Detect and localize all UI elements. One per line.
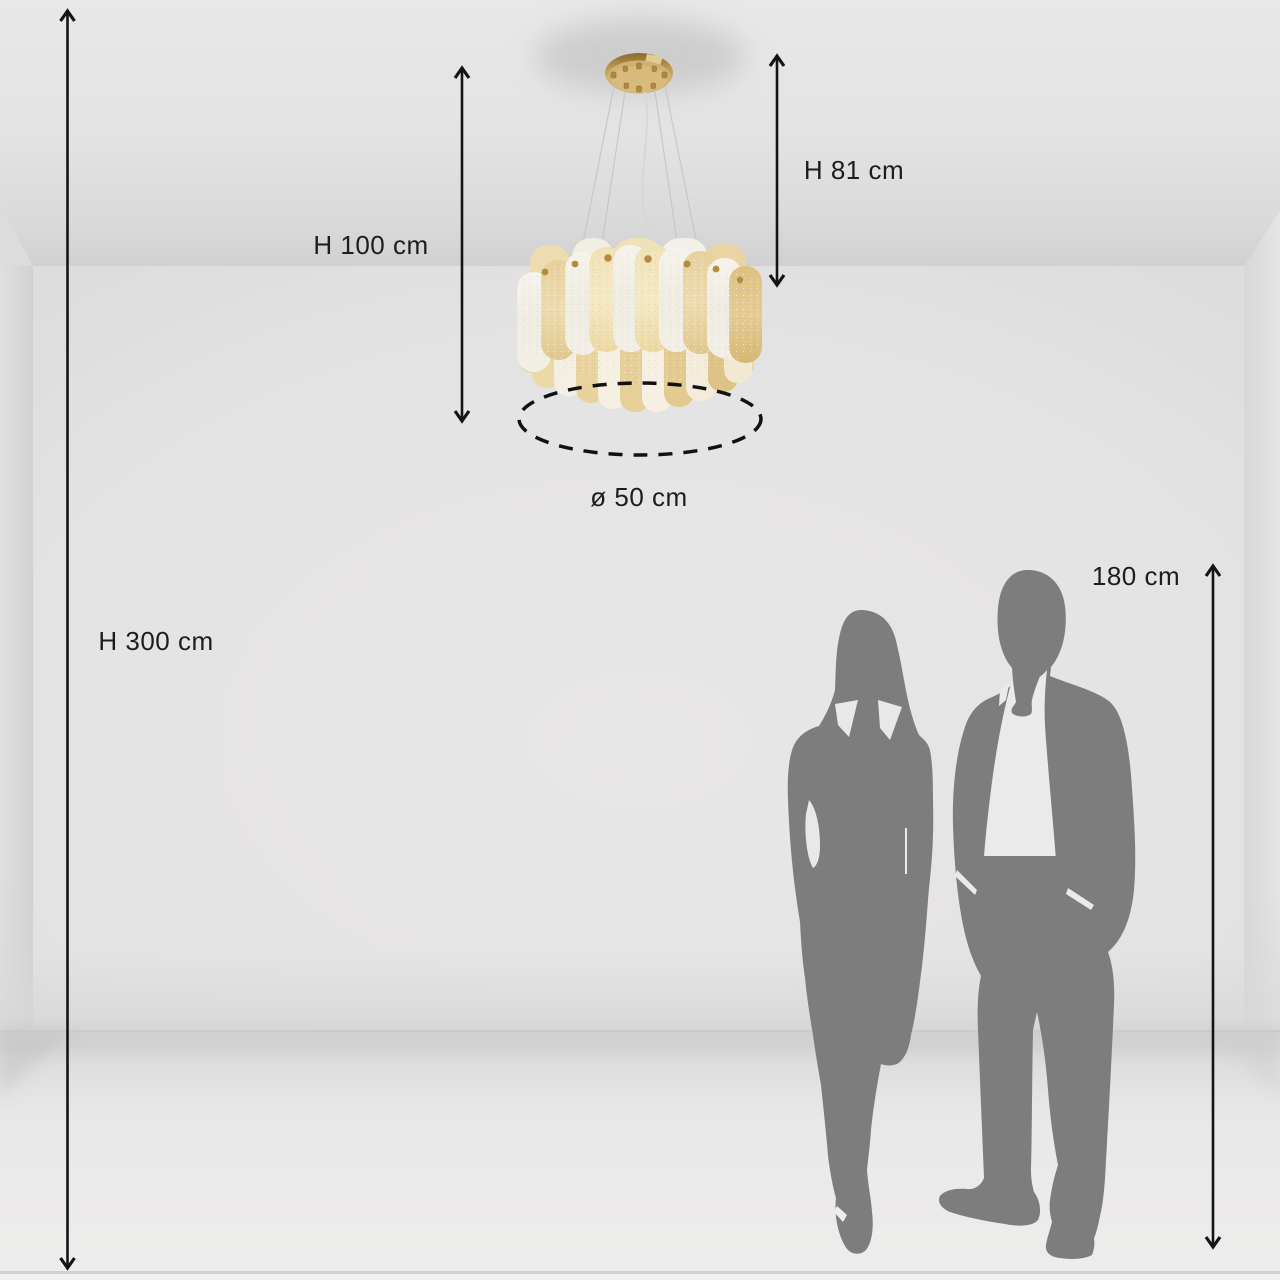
svg-text:180 cm: 180 cm <box>1092 561 1180 591</box>
svg-text:ø 50 cm: ø 50 cm <box>590 482 687 512</box>
svg-text:H 100 cm: H 100 cm <box>313 230 428 260</box>
svg-text:H 300 cm: H 300 cm <box>98 626 213 656</box>
svg-text:H 81 cm: H 81 cm <box>804 155 904 185</box>
